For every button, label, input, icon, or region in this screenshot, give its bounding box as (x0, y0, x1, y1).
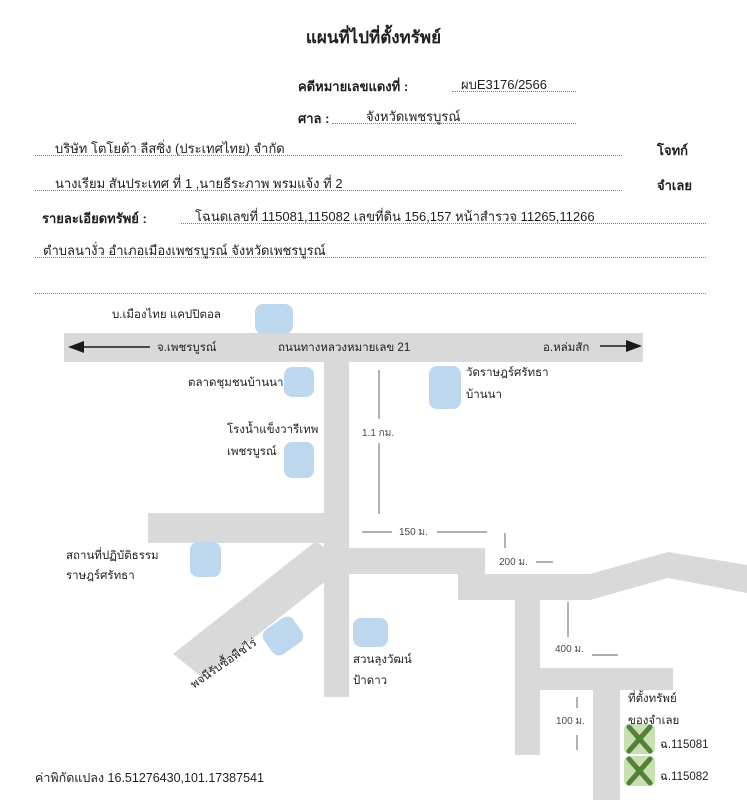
defendant-role-label: จำเลย (657, 175, 692, 196)
defendant-name: นางเรียม สันประเทศ ที่ 1 ,นายธีระภาพ พรม… (35, 173, 622, 191)
x-icon (624, 756, 655, 786)
plaintiff-name: บริษัท โตโยต้า ลีสซิ่ง (ประเทศไทย) จำกัด (35, 138, 622, 156)
property-detail-line1: โฉนดเลขที่ 115081,115082 เลขที่ดิน 156,1… (181, 206, 706, 224)
parcel-coordinates: ค่าพิกัดแปลง 16.51276430,101.17387541 (35, 768, 264, 788)
property-x-marker-2 (624, 756, 655, 786)
place-label-banna-market: ตลาดชุมชนบ้านนา (188, 374, 283, 392)
distance-label-200m: 200 ม. (499, 555, 528, 570)
x-icon (624, 724, 655, 754)
marker-banna-market (284, 367, 314, 397)
court-label: ศาล : (298, 108, 329, 129)
deed-label-115082: ฉ.115082 (660, 768, 709, 786)
marker-muangthai-capital (255, 304, 293, 334)
distance-label-150m: 150 ม. (399, 525, 428, 540)
west-branch-road (148, 513, 330, 543)
marker-garden (353, 618, 388, 647)
place-label-dhamma-line2: ราษฎร์ศรัทธา (66, 567, 135, 585)
south-road-vertical (515, 600, 540, 755)
case-number-label: คดีหมายเลขแดงที่ : (298, 76, 408, 97)
place-label-temple-line2: บ้านนา (466, 386, 502, 404)
page-title: แผนที่ไปที่ตั้งทรัพย์ (0, 24, 747, 51)
plaintiff-role-label: โจทก์ (657, 140, 688, 161)
place-label-garden-line1: สวนลุงวัฒน์ (353, 651, 412, 669)
place-label-garden-line2: ป้าดาว (353, 672, 387, 690)
property-access-road (593, 690, 620, 800)
deed-label-115081: ฉ.115081 (660, 736, 709, 754)
highway-21-label: ถนนทางหลวงหมายเลข 21 (278, 339, 410, 357)
place-label-temple-line1: วัดราษฎร์ศรัทธา (466, 364, 549, 382)
place-label-dhamma-line1: สถานที่ปฏิบัติธรรม (66, 547, 159, 565)
east-road-upper (349, 548, 485, 574)
property-detail-label: รายละเอียดทรัพย์ : (42, 208, 147, 229)
distance-label-400m: 400 ม. (555, 642, 584, 657)
property-x-marker-1 (624, 724, 655, 754)
case-number-value: ผบE3176/2566 (452, 74, 576, 92)
marker-dhamma (190, 542, 221, 577)
direction-label-phetchabun: จ.เพชรบูรณ์ (157, 339, 217, 357)
place-label-ice-factory-line1: โรงน้ำแข็งวารีเทพ (227, 421, 318, 439)
marker-temple (429, 366, 461, 409)
property-detail-line2: ตำบลนางั่ว อำเภอเมืองเพชรบูรณ์ จังหวัดเพ… (35, 240, 706, 258)
empty-dotted-line (35, 276, 706, 294)
bottom-connector-road (540, 668, 673, 690)
property-map-document: แผนที่ไปที่ตั้งทรัพย์ คดีหมายเลขแดงที่ :… (0, 0, 747, 800)
place-label-ice-factory-line2: เพชรบูรณ์ (227, 443, 277, 461)
property-location-line1: ที่ตั้งทรัพย์ (628, 690, 677, 708)
marker-ice-factory (284, 442, 314, 478)
distance-label-1-1km: 1.1 กม. (362, 426, 394, 441)
court-value: จังหวัดเพชรบูรณ์ (332, 106, 576, 124)
place-label-muangthai-capital: บ.เมืองไทย แคปปิตอล (112, 306, 221, 324)
distance-label-100m: 100 ม. (556, 714, 585, 729)
direction-label-lomsak: อ.หล่มสัก (543, 339, 589, 357)
